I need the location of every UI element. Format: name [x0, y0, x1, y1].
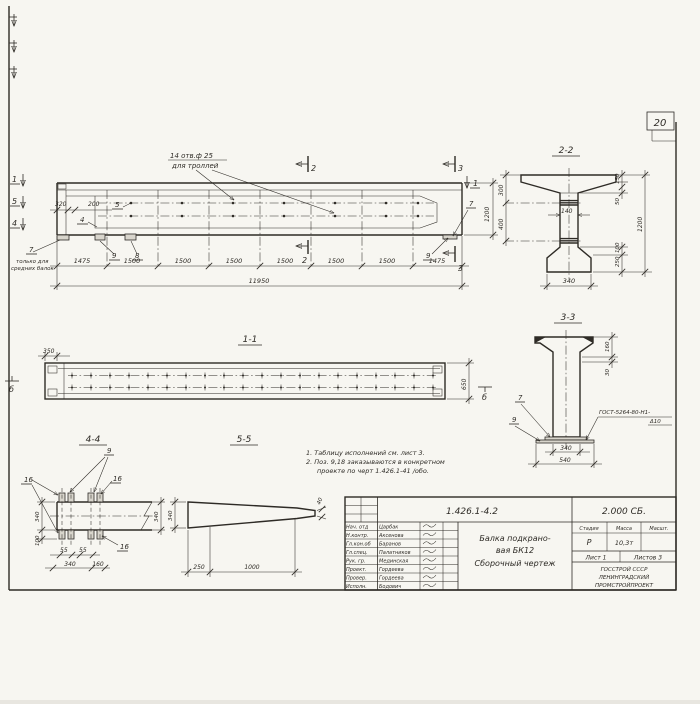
row-name: Баранов [379, 542, 401, 548]
row-name: Палатников [379, 550, 411, 556]
pos-label-7-right: 7 [453, 200, 476, 236]
pos-label-9: 9 [509, 416, 540, 441]
svg-text:340: 340 [154, 511, 160, 522]
dims-bottom: 340 540 [528, 444, 602, 468]
pos-label-5: 5 [112, 201, 131, 209]
row-name: Бодович [379, 584, 401, 590]
svg-text:340: 340 [35, 511, 41, 522]
org-line-2: ЛЕНИНГРАДСКИЙ [598, 574, 649, 581]
cut-mark-5-left: 5 [10, 196, 23, 208]
row-role: Рук. гр. [346, 559, 366, 565]
svg-text:только для: только для [16, 259, 49, 265]
middle-beam-callout: 7 только для средних балок [11, 240, 60, 272]
signature-glyph [423, 575, 436, 578]
title-block: 1.426.1-4.2 2.000 СБ. Нач. отд Царбак Н.… [345, 497, 676, 590]
svg-text:1200: 1200 [484, 207, 491, 222]
row-role: Гл.спец. [346, 550, 368, 556]
section-view-1-1: 1-1 350 650 б б [5, 335, 492, 404]
weld-gost-note: ГОСТ-5264-80-Н1- [599, 410, 650, 416]
signature-glyph [423, 533, 436, 536]
weld-size-note: Δ10 [649, 419, 661, 425]
svg-text:1475: 1475 [429, 257, 446, 265]
pos-label-7: 7 [515, 394, 550, 437]
signature-glyph [423, 550, 436, 553]
stage-value: Р [587, 538, 592, 547]
section-2-2-title: 2-2 [559, 146, 574, 156]
svg-text:1: 1 [473, 179, 478, 188]
svg-text:16: 16 [113, 475, 122, 483]
svg-text:5: 5 [12, 197, 17, 206]
svg-text:1500: 1500 [124, 257, 141, 265]
pos-label-16-top-right: 16 [101, 475, 122, 494]
pos-label-16-bottom-right: 16 [102, 536, 129, 551]
dims-left: 340 100 [35, 497, 57, 546]
row-role: Исполн. [346, 584, 367, 590]
section-5-5-title: 5-5 [237, 435, 252, 445]
row-role: Провер. [346, 576, 367, 582]
cut-mark-4-left: 4 [10, 218, 23, 230]
svg-text:100: 100 [615, 242, 621, 253]
svg-text:160: 160 [605, 341, 611, 352]
section-view-5-5: 5-5 340 40 250 1000 [168, 435, 326, 577]
dim-140: 140 [548, 208, 590, 215]
main-elevation-view: 14 отв.ф 25 для троллей 1 5 4 320 200 5 … [10, 152, 498, 290]
drawing-title-line2: вая БК12 [496, 546, 534, 555]
cut-mark-3-top: 3 [443, 156, 463, 173]
svg-text:4: 4 [80, 216, 84, 224]
svg-text:140: 140 [561, 208, 573, 215]
row-name: Гордеева [379, 567, 404, 573]
row-name: Царбак [379, 525, 398, 531]
svg-text:340: 340 [563, 277, 575, 285]
svg-text:1000: 1000 [244, 564, 259, 571]
marker-b-left: б [5, 376, 19, 394]
binding-mark-icon [9, 14, 17, 26]
svg-text:1500: 1500 [226, 257, 243, 265]
dim-200: 200 [88, 201, 100, 208]
svg-text:540: 540 [559, 457, 571, 464]
svg-text:средних балок: средних балок [11, 266, 55, 272]
pos-label-9: 9 [70, 447, 114, 492]
svg-text:160: 160 [92, 561, 104, 568]
col-stage-header: Стадия [579, 526, 598, 532]
cut-mark-2-bottom: 2 [296, 240, 308, 265]
dim-340: 340 [168, 497, 186, 533]
drawing-title-line1: Балка подкрано- [479, 534, 550, 543]
svg-text:2: 2 [311, 164, 316, 173]
dim-chain: 1475 1500 1500 1500 1500 1500 1500 1475 … [50, 236, 469, 290]
svg-text:7: 7 [518, 394, 523, 402]
org-line-3: ПРОМСТРОЙПРОЕКТ [595, 582, 654, 589]
row-role: Н.контр. [346, 533, 368, 539]
svg-text:350: 350 [43, 348, 55, 355]
sheets-total: Листов 3 [633, 555, 662, 562]
svg-text:9: 9 [112, 252, 117, 260]
end-plate-pos7 [57, 235, 69, 240]
plate-pos9 [536, 440, 594, 443]
cut-mark-3-bottom: 3 [443, 246, 463, 273]
svg-text:9: 9 [512, 416, 517, 424]
svg-text:55: 55 [79, 547, 87, 554]
svg-text:2: 2 [302, 256, 307, 265]
note-line-1: 1. Таблицу исполнений см. лист 3. [306, 449, 425, 457]
pos-label-7: 7 [29, 246, 34, 254]
row-name: Мединская [379, 559, 408, 565]
binding-mark-icon [9, 66, 17, 78]
note-line-3: проекте по черт 1.426.1-41 /обо. [317, 467, 429, 475]
drawing-sheet: 20 14 отв.ф 25 для троллей 1 5 [0, 0, 700, 700]
cut-mark-2-top: 2 [296, 156, 316, 173]
svg-text:9: 9 [107, 447, 112, 455]
binding-mark-icon [9, 40, 17, 52]
row-role: Гл.кон.об [346, 542, 371, 548]
dim-650: 650 [447, 358, 474, 404]
svg-text:30: 30 [605, 369, 611, 376]
sheet-number: Лист 1 [585, 555, 607, 562]
dim-40: 40 [316, 497, 326, 521]
weld-callout: ГОСТ-5264-80-Н1- Δ10 [586, 410, 672, 440]
trolley-holes [130, 202, 420, 218]
svg-text:650: 650 [461, 378, 468, 390]
svg-text:1500: 1500 [175, 257, 192, 265]
plate-pos7 [545, 437, 587, 440]
svg-text:1200: 1200 [637, 217, 644, 232]
svg-text:55: 55 [60, 547, 68, 554]
svg-text:40: 40 [316, 497, 324, 506]
view-1-1-title: 1-1 [243, 335, 258, 345]
dims-left: 300 400 [498, 170, 521, 246]
svg-text:300: 300 [498, 184, 505, 196]
row-name: Гордеева [379, 576, 404, 582]
svg-text:1500: 1500 [277, 257, 294, 265]
col-scale-header: Масшт. [649, 526, 668, 532]
svg-text:150: 150 [615, 173, 621, 184]
svg-text:1: 1 [12, 175, 17, 184]
svg-text:4: 4 [12, 219, 17, 228]
svg-text:7: 7 [469, 200, 474, 208]
mass-value: 10,3т [615, 539, 633, 547]
notes: 1. Таблицу исполнений см. лист 3. 2. Поз… [306, 449, 445, 475]
pos-label-9-left: 9 [100, 241, 120, 260]
svg-text:100: 100 [35, 535, 41, 546]
dims-bottom: 55 55 340 160 [45, 547, 110, 571]
org-line-1: ГОССТРОЙ СССР [601, 566, 648, 573]
signature-glyph [423, 567, 436, 570]
svg-text:5: 5 [115, 201, 120, 209]
cut-mark-1-left: 1 [10, 174, 23, 186]
svg-text:б: б [482, 393, 487, 402]
holes-callout-line1: 14 отв.ф 25 [170, 152, 214, 160]
svg-text:16: 16 [120, 543, 129, 551]
svg-text:3: 3 [458, 164, 463, 173]
plate-pos8 [125, 234, 136, 240]
dim-350: 350 [38, 348, 70, 361]
dim-340-bottom: 340 [540, 274, 598, 290]
section-view-2-2: 2-2 140 300 400 150 50 100 250 1 [498, 146, 652, 290]
svg-text:250: 250 [615, 256, 621, 267]
page-number-stamp: 20 [647, 112, 676, 141]
row-name: Аксенова [378, 533, 404, 539]
svg-text:340: 340 [560, 445, 572, 452]
row-role: Проект. [346, 567, 367, 573]
page-number: 20 [654, 118, 667, 129]
dim-320: 320 [55, 201, 67, 208]
row-role: Нач. отд [346, 525, 369, 531]
plan-holes [71, 373, 434, 391]
svg-text:340: 340 [64, 561, 76, 568]
signature-glyph [423, 524, 436, 527]
section-view-3-3: 3-3 7 9 ГОСТ-5264-80-Н1- Δ10 160 30 3 [509, 313, 672, 468]
section-4-4-title: 4-4 [86, 435, 101, 445]
pos-label-4: 4 [77, 216, 97, 227]
dim-right-340: 340 [152, 497, 165, 535]
signature-rows: Нач. отд Царбак Н.контр. Аксенова Гл.кон… [346, 524, 436, 590]
svg-text:1500: 1500 [379, 257, 396, 265]
plate-pos9 [95, 234, 105, 240]
svg-text:50: 50 [615, 198, 621, 205]
drawing-canvas: 20 14 отв.ф 25 для троллей 1 5 [0, 0, 700, 700]
cut-mark-1-right: 1 [467, 176, 480, 188]
marker-b-right: б [478, 387, 492, 402]
dim-height-1200: 1200 [464, 178, 498, 240]
signature-glyph [423, 541, 436, 544]
signature-glyph [423, 558, 436, 561]
doc-number: 1.426.1-4.2 [446, 507, 498, 517]
section-view-4-4: 4-4 9 16 16 16 340 100 [21, 435, 165, 571]
signature-glyph [423, 584, 436, 587]
svg-text:1500: 1500 [328, 257, 345, 265]
dim-total: 11950 [249, 277, 270, 285]
holes-callout-line2: для троллей [171, 162, 219, 170]
svg-text:340: 340 [168, 510, 174, 521]
drawing-title-line3: Сборочный чертеж [475, 559, 557, 568]
svg-text:400: 400 [498, 218, 505, 230]
svg-text:250: 250 [193, 564, 205, 571]
col-mass-header: Масса [616, 526, 632, 532]
section-3-3-title: 3-3 [561, 313, 576, 323]
svg-text:1475: 1475 [74, 257, 91, 265]
doc-code: 2.000 СБ. [602, 507, 646, 517]
svg-text:б: б [9, 385, 14, 394]
note-line-2: 2. Поз. 9,18 заказываются в конкретном [306, 458, 445, 466]
end-plate-right [443, 235, 457, 239]
